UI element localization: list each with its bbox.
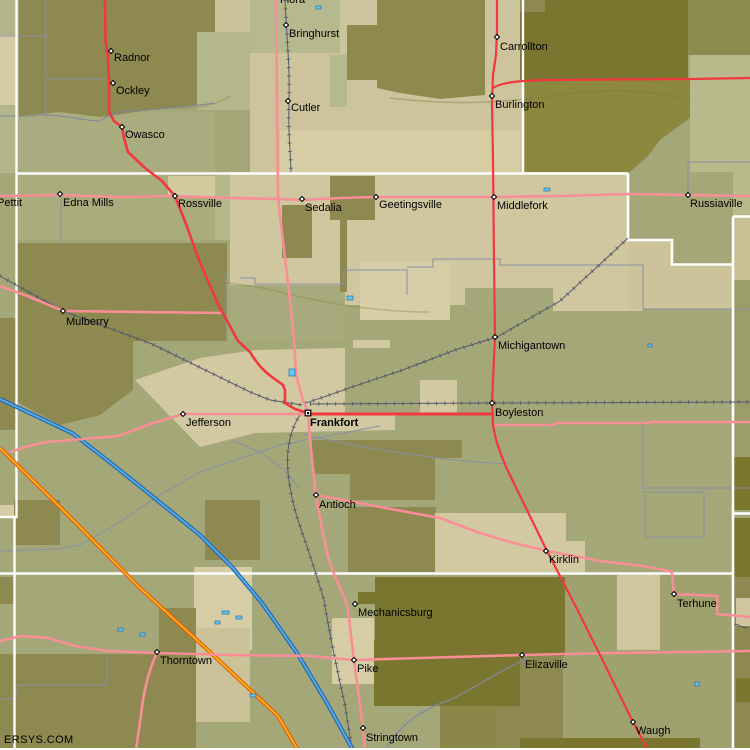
svg-text:Middlefork: Middlefork — [497, 200, 548, 212]
svg-text:Michigantown: Michigantown — [498, 340, 565, 352]
svg-text:Pettit: Pettit — [0, 197, 22, 209]
svg-text:Owasco: Owasco — [125, 129, 165, 141]
svg-text:Carrollton: Carrollton — [500, 41, 548, 53]
svg-text:Rossville: Rossville — [178, 198, 222, 210]
svg-text:Antioch: Antioch — [319, 499, 356, 511]
svg-text:Mulberry: Mulberry — [66, 316, 109, 328]
svg-text:Kirklin: Kirklin — [549, 554, 579, 566]
svg-text:Radnor: Radnor — [114, 52, 150, 64]
svg-text:Frankfort: Frankfort — [310, 417, 359, 429]
svg-text:Cutler: Cutler — [291, 102, 321, 114]
svg-text:Elizaville: Elizaville — [525, 659, 568, 671]
svg-text:Waugh: Waugh — [636, 725, 670, 737]
svg-text:Terhune: Terhune — [677, 598, 717, 610]
svg-text:Ockley: Ockley — [116, 85, 150, 97]
svg-text:Flora: Flora — [280, 0, 306, 6]
svg-text:Geetingsville: Geetingsville — [379, 199, 442, 211]
svg-text:Bringhurst: Bringhurst — [289, 28, 339, 40]
svg-text:Russiaville: Russiaville — [690, 198, 743, 210]
svg-text:Burlington: Burlington — [495, 99, 545, 111]
svg-text:ERSYS.COM: ERSYS.COM — [4, 734, 74, 746]
svg-text:Sedalia: Sedalia — [305, 202, 343, 214]
svg-text:Mechanicsburg: Mechanicsburg — [358, 607, 433, 619]
svg-text:Boyleston: Boyleston — [495, 407, 543, 419]
svg-text:Thorntown: Thorntown — [160, 655, 212, 667]
svg-text:Stringtown: Stringtown — [366, 732, 418, 744]
svg-text:Jefferson: Jefferson — [186, 417, 231, 429]
svg-text:Edna Mills: Edna Mills — [63, 197, 114, 209]
svg-text:Pike: Pike — [357, 663, 378, 675]
